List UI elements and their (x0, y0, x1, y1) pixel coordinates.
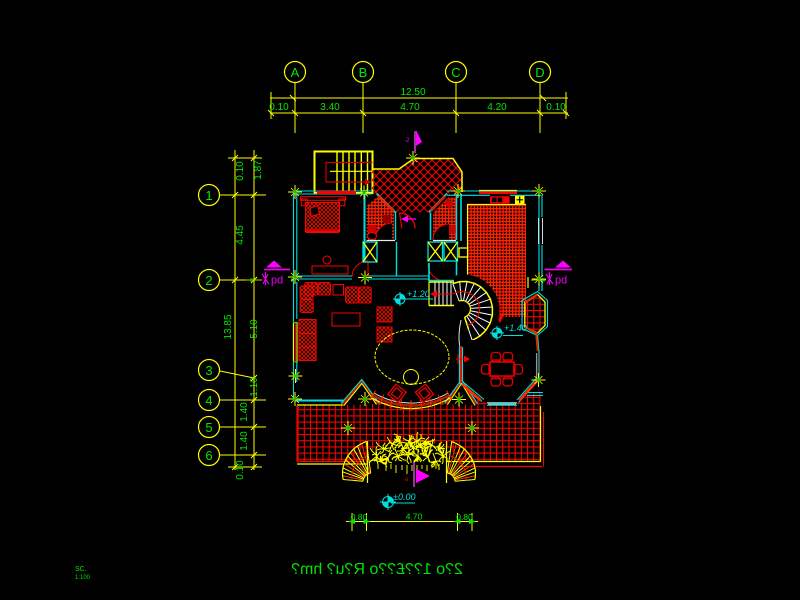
svg-text:0.10: 0.10 (546, 102, 566, 113)
svg-text:1.10: 1.10 (249, 377, 260, 397)
svg-text:1:100: 1:100 (75, 575, 91, 581)
svg-text:1.87: 1.87 (253, 160, 264, 180)
svg-text:3: 3 (205, 363, 212, 378)
svg-text:pd: pd (271, 275, 283, 287)
svg-text:0.10: 0.10 (269, 102, 289, 113)
svg-text:D: D (535, 65, 544, 80)
svg-text:+1.40: +1.40 (504, 323, 527, 333)
svg-text:13.85: 13.85 (223, 314, 234, 339)
svg-text:0.80: 0.80 (351, 512, 368, 522)
svg-text:4: 4 (205, 393, 212, 408)
svg-text:4.45: 4.45 (235, 225, 246, 245)
svg-text:6: 6 (205, 448, 212, 463)
svg-text:1.40: 1.40 (239, 431, 250, 451)
svg-text:+1.20: +1.20 (407, 289, 430, 299)
svg-text:2: 2 (205, 273, 212, 288)
svg-text:1: 1 (205, 188, 212, 203)
svg-text:4.70: 4.70 (400, 102, 420, 113)
svg-text:0.80: 0.80 (456, 512, 473, 522)
svg-text:4.20: 4.20 (487, 102, 507, 113)
svg-text:±0.00: ±0.00 (393, 492, 415, 502)
svg-text:12.50: 12.50 (400, 87, 425, 98)
svg-text:-a: -a (403, 477, 409, 483)
svg-text:4.70: 4.70 (406, 512, 423, 522)
svg-text:0.10: 0.10 (235, 161, 246, 181)
svg-text:2?o 1??£??o R?u? hm?: 2?o 1??£??o R?u? hm? (291, 561, 463, 578)
svg-text:1.40: 1.40 (239, 402, 250, 422)
svg-text:A: A (291, 65, 300, 80)
svg-text:3.40: 3.40 (320, 102, 340, 113)
svg-text:pd: pd (555, 275, 567, 287)
svg-text:B: B (359, 65, 368, 80)
svg-text:5.10: 5.10 (249, 319, 260, 339)
svg-text:5: 5 (205, 420, 212, 435)
svg-text:C: C (451, 65, 460, 80)
svg-text:0.10: 0.10 (235, 460, 246, 480)
svg-text:SC.: SC. (75, 566, 87, 573)
svg-text:-2: -2 (404, 138, 410, 144)
